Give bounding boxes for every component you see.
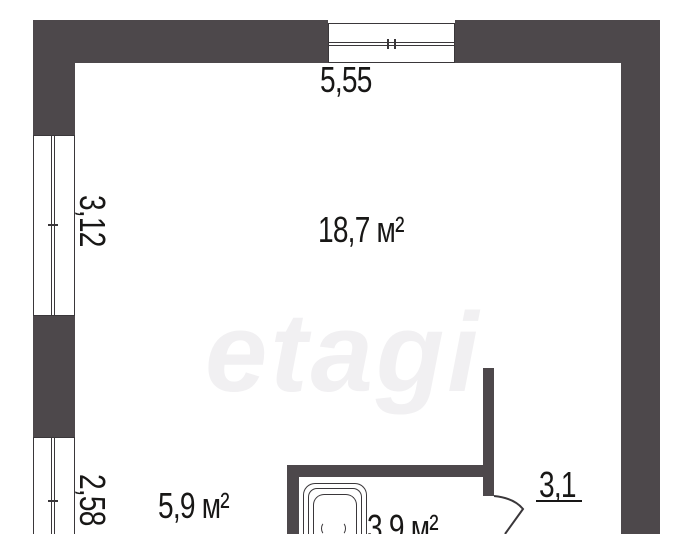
window-left-upper-tick [48, 224, 58, 226]
window-top-tick-1 [387, 39, 389, 49]
dimension-left-height-lower: 2,58 [74, 474, 110, 526]
dimension-top-width: 5,55 [320, 62, 372, 98]
wall-bathroom-horizontal [287, 465, 494, 477]
wall-left-upper-segment [33, 20, 75, 135]
window-left-lower-tick [48, 500, 58, 502]
wall-left-middle-segment [33, 316, 75, 437]
window-top [328, 23, 455, 63]
bathtub-drain-right-arc [337, 522, 346, 534]
floor-plan: etagi 5,55 3,12 2,58 18,7 м² 5,9 м² 3,9 … [0, 0, 694, 534]
dimension-hall-width: 3,1 [539, 467, 576, 503]
window-top-glass-line [329, 42, 454, 46]
window-left-lower [33, 437, 75, 534]
dimension-left-height-upper: 3,12 [74, 195, 110, 247]
window-top-tick-2 [394, 39, 396, 49]
bathtub-drain-left-arc [321, 522, 330, 534]
dimension-hall-underline [536, 500, 582, 502]
wall-right [621, 20, 660, 534]
area-label-main-room: 18,7 м² [318, 212, 404, 248]
window-left-upper [33, 135, 75, 316]
area-label-bathroom: 3,9 м² [367, 510, 438, 534]
window-left-lower-glass-line [51, 438, 55, 534]
bathtub-inner-outline [313, 494, 357, 534]
wall-bathroom-left-stub [287, 465, 299, 534]
watermark: etagi [205, 288, 481, 417]
window-left-upper-glass-line [51, 136, 55, 315]
wall-top-left-segment [33, 20, 328, 63]
area-label-kitchen: 5,9 м² [158, 488, 229, 524]
door-swing-arc [478, 488, 538, 534]
